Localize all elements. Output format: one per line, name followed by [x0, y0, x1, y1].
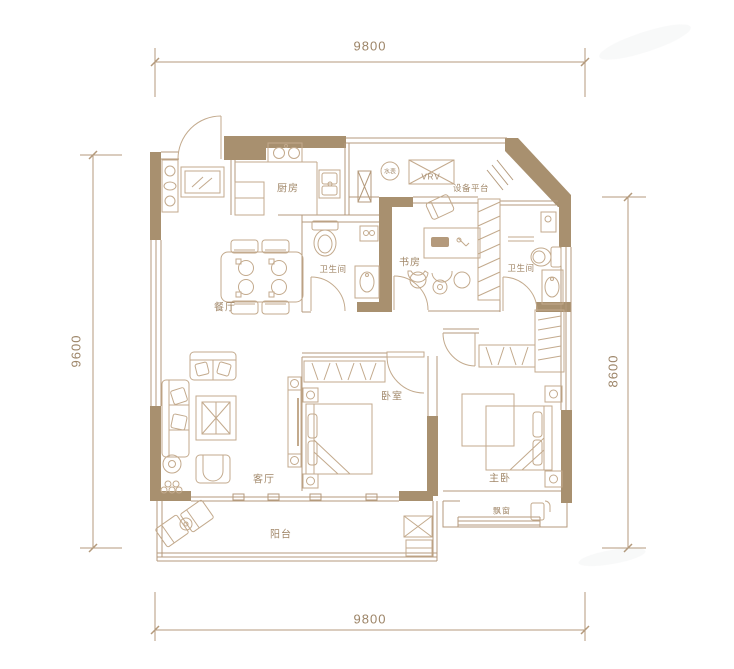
foyer-fixtures — [162, 160, 224, 212]
bedroom-furniture — [303, 361, 385, 488]
room-label-study: 书房 — [399, 254, 421, 269]
dimension-right: 8600 — [606, 355, 621, 388]
entry-door-arc — [178, 116, 221, 159]
floorplan-drawing — [0, 0, 734, 669]
room-label-balcony: 阳台 — [270, 526, 292, 541]
room-label-bathroom-right: 卫生间 — [507, 262, 534, 274]
balcony-furniture — [155, 500, 432, 556]
bathroom-right-fixtures — [508, 212, 563, 304]
dimension-left: 9600 — [69, 335, 84, 368]
room-label-vrv: VRV — [421, 173, 440, 182]
floorplan: 9800 9800 9600 8600 厨房 水表 VRV 设备平台 卫生间 书… — [0, 0, 734, 669]
living-furniture — [161, 352, 301, 493]
room-label-master: 主卧 — [489, 470, 511, 485]
bathroom-left-fixtures — [312, 221, 379, 298]
room-label-kitchen: 厨房 — [277, 180, 299, 195]
room-label-dining: 餐厅 — [214, 299, 236, 314]
dimension-top: 9800 — [354, 39, 387, 54]
room-label-living: 客厅 — [253, 471, 275, 486]
master-furniture — [462, 310, 564, 520]
room-label-bedroom: 卧室 — [381, 388, 403, 403]
walls-thick — [150, 136, 572, 503]
watermark-smudge — [577, 18, 693, 570]
study-fixtures — [408, 194, 500, 300]
walls-thin — [151, 138, 571, 561]
room-label-water-meter: 水表 — [384, 167, 396, 176]
room-label-equipment-platform: 设备平台 — [453, 182, 489, 194]
dimension-bottom: 9800 — [354, 612, 387, 627]
room-label-bay-window: 飘窗 — [493, 506, 511, 517]
room-label-bathroom-left: 卫生间 — [319, 263, 346, 275]
